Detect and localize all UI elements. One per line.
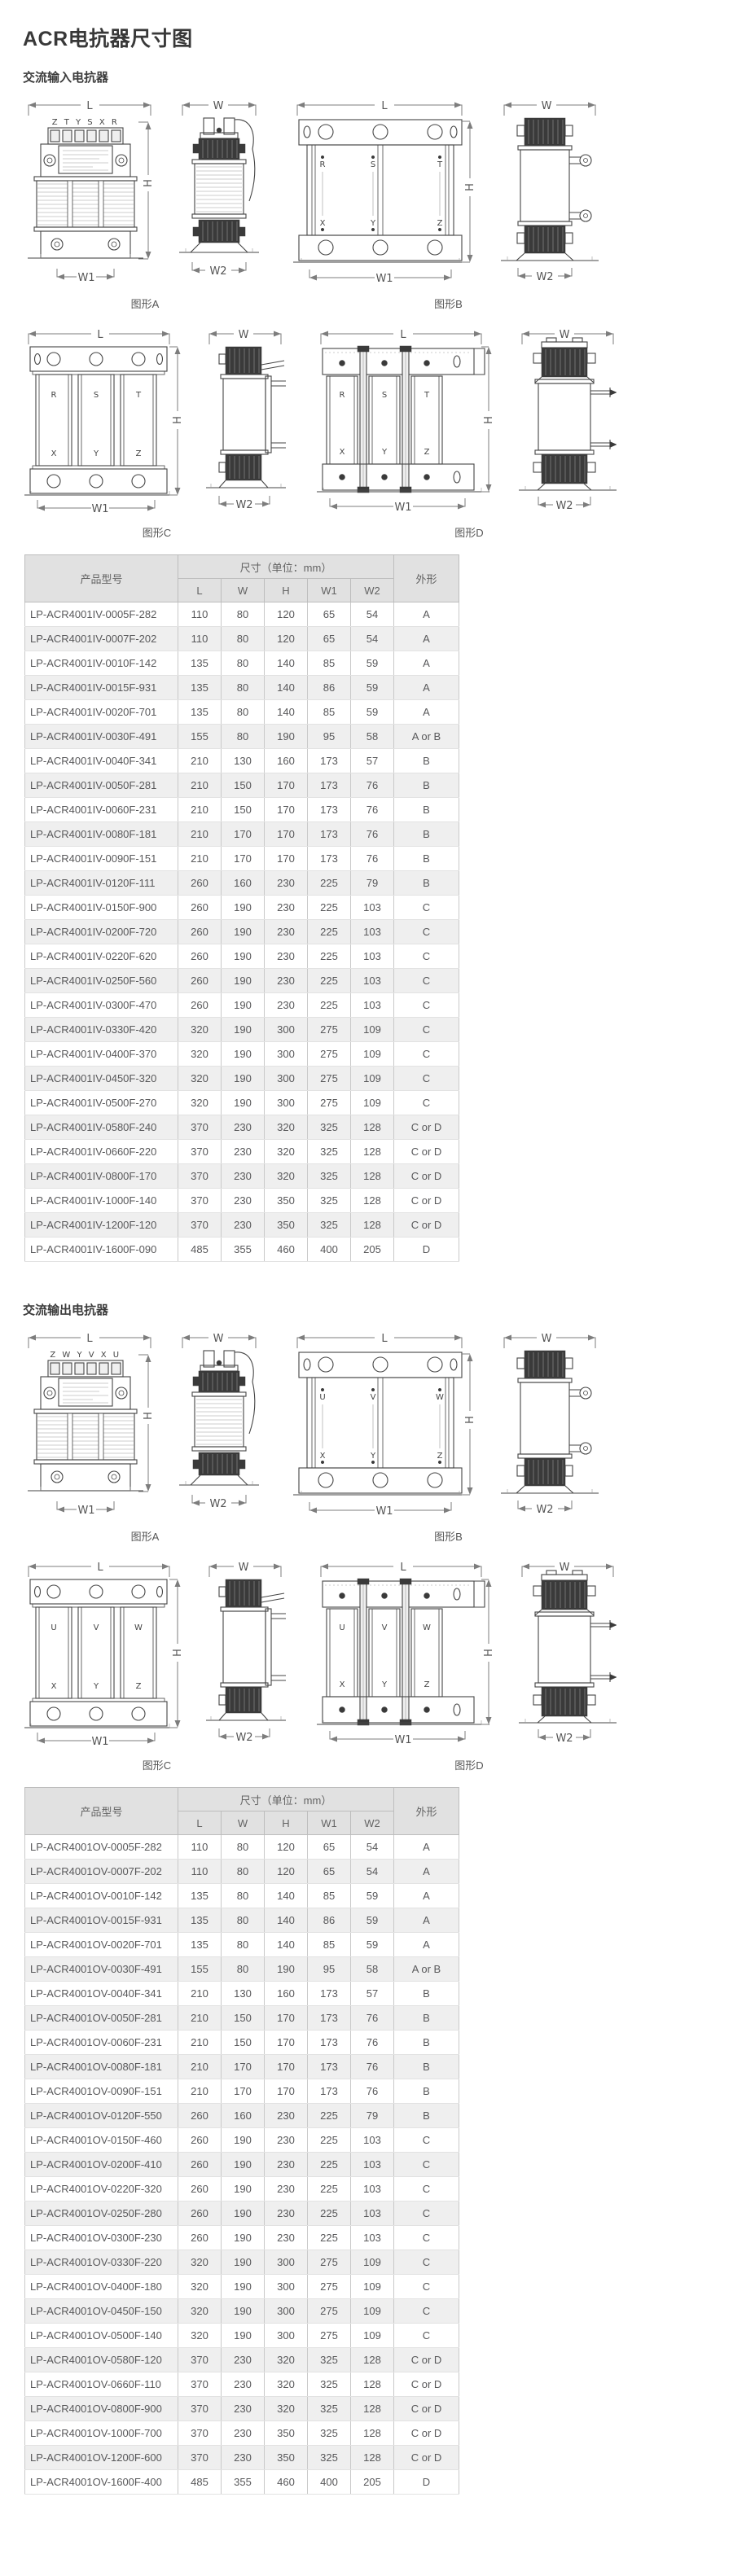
- dim-cell: 320: [265, 1115, 308, 1140]
- dim-cell: 79: [351, 2104, 394, 2128]
- model-cell: LP-ACR4001OV-0250F-280: [25, 2201, 178, 2226]
- shape-cell: C or D: [394, 2397, 459, 2421]
- shape-cell: C or D: [394, 1164, 459, 1189]
- shape-cell: C: [394, 2153, 459, 2177]
- dim-cell: 230: [265, 896, 308, 920]
- dim-cell: 190: [222, 1042, 265, 1067]
- figure-group-c: L R S T X Y Z: [24, 326, 289, 540]
- shape-cell: C: [394, 969, 459, 993]
- model-cell: LP-ACR4001OV-0500F-140: [25, 2324, 178, 2348]
- dim-cell: 76: [351, 847, 394, 871]
- shape-cell: C: [394, 1018, 459, 1042]
- figure-caption-c: 图形C: [24, 524, 289, 540]
- dim-cell: 230: [222, 1164, 265, 1189]
- dim-cell: 109: [351, 1018, 394, 1042]
- dim-cell: 103: [351, 944, 394, 969]
- table-row: LP-ACR4001IV-0500F-270320190300275109C: [25, 1091, 459, 1115]
- dim-cell: 325: [308, 2446, 351, 2470]
- model-cell: LP-ACR4001IV-0660F-220: [25, 1140, 178, 1164]
- dim-cell: 103: [351, 920, 394, 944]
- dim-label-w1: W1: [375, 273, 393, 285]
- dim-cell: 80: [222, 1860, 265, 1884]
- dim-cell: 160: [265, 749, 308, 773]
- dim-cell: 230: [222, 1115, 265, 1140]
- dim-cell: 76: [351, 2055, 394, 2079]
- table-row: LP-ACR4001OV-0660F-110370230320325128C o…: [25, 2372, 459, 2397]
- shape-cell: A: [394, 1884, 459, 1908]
- table-row: LP-ACR4001OV-0010F-142135801408559A: [25, 1884, 459, 1908]
- shape-cell: C: [394, 944, 459, 969]
- terminal-labels: Z W Y V X U: [50, 1351, 121, 1360]
- dim-cell: 103: [351, 2128, 394, 2153]
- dim-cell: 110: [178, 1835, 222, 1860]
- shape-cell: B: [394, 1982, 459, 2006]
- shape-cell: C: [394, 1067, 459, 1091]
- shape-cell: C or D: [394, 1115, 459, 1140]
- table-row: LP-ACR4001OV-1600F-400485355460400205D: [25, 2470, 459, 2495]
- model-cell: LP-ACR4001IV-0015F-931: [25, 676, 178, 700]
- figure-caption-d: 图形D: [317, 524, 621, 540]
- dim-label-h: H: [464, 1416, 476, 1424]
- table-row: LP-ACR4001OV-0800F-900370230320325128C o…: [25, 2397, 459, 2421]
- dim-cell: 130: [222, 1982, 265, 2006]
- dim-cell: 59: [351, 676, 394, 700]
- model-cell: LP-ACR4001OV-0010F-142: [25, 1884, 178, 1908]
- page-title: ACR电抗器尺寸图: [23, 23, 733, 52]
- table-row: LP-ACR4001IV-0330F-420320190300275109C: [25, 1018, 459, 1042]
- model-cell: LP-ACR4001IV-0500F-270: [25, 1091, 178, 1115]
- dim-label-w1: W1: [77, 272, 94, 284]
- figure-row-ab: L Z T Y S X R: [24, 97, 733, 311]
- figure-caption-b: 图形B: [293, 1528, 604, 1544]
- shape-cell: C: [394, 896, 459, 920]
- dim-cell: 320: [265, 1164, 308, 1189]
- figure-b-side-drawing: W W2: [498, 97, 604, 292]
- dim-cell: 275: [308, 1042, 351, 1067]
- shape-cell: C or D: [394, 1140, 459, 1164]
- dim-cell: 230: [222, 2446, 265, 2470]
- dim-cell: 210: [178, 822, 222, 847]
- dim-cell: 135: [178, 700, 222, 725]
- shape-cell: A: [394, 700, 459, 725]
- shape-cell: B: [394, 2079, 459, 2104]
- dim-cell: 300: [265, 2299, 308, 2324]
- dim-label-l: L: [381, 1333, 388, 1345]
- model-cell: LP-ACR4001IV-0400F-370: [25, 1042, 178, 1067]
- dim-cell: 370: [178, 2348, 222, 2372]
- dim-cell: 86: [308, 1908, 351, 1933]
- figure-d-front-drawing: L U V W X Y: [317, 1558, 496, 1754]
- dim-cell: 320: [178, 1067, 222, 1091]
- dim-cell: 85: [308, 1884, 351, 1908]
- dim-cell: 120: [265, 1835, 308, 1860]
- dim-cell: 320: [178, 2275, 222, 2299]
- table-row: LP-ACR4001IV-0660F-220370230320325128C o…: [25, 1140, 459, 1164]
- figure-row-ab: L Z W Y V X U: [24, 1330, 733, 1544]
- terminal-label: V: [371, 1393, 376, 1402]
- terminal-label: R: [340, 391, 345, 400]
- figure-group-b: L R S T X Y Z: [293, 97, 604, 311]
- model-cell: LP-ACR4001IV-0330F-420: [25, 1018, 178, 1042]
- dim-cell: 325: [308, 1140, 351, 1164]
- dim-cell: 190: [222, 2177, 265, 2201]
- dim-label-w1: W1: [77, 1505, 94, 1517]
- dim-cell: 230: [265, 2226, 308, 2250]
- model-cell: LP-ACR4001IV-0120F-111: [25, 871, 178, 896]
- dim-label-w1: W1: [91, 503, 108, 515]
- table-row: LP-ACR4001OV-0120F-55026016023022579B: [25, 2104, 459, 2128]
- figure-c-front-drawing: L U V W X Y Z: [24, 1558, 183, 1754]
- dim-cell: 170: [265, 847, 308, 871]
- dim-cell: 170: [265, 773, 308, 798]
- figure-group-b: L U V W X Y Z: [293, 1330, 604, 1544]
- dim-cell: 128: [351, 1213, 394, 1238]
- dim-cell: 190: [222, 944, 265, 969]
- figures-ac-input: L Z T Y S X R: [0, 97, 733, 540]
- shape-cell: B: [394, 2104, 459, 2128]
- model-cell: LP-ACR4001OV-0090F-151: [25, 2079, 178, 2104]
- model-cell: LP-ACR4001OV-0400F-180: [25, 2275, 178, 2299]
- shape-cell: C: [394, 2177, 459, 2201]
- dim-cell: 325: [308, 1164, 351, 1189]
- model-cell: LP-ACR4001OV-0030F-491: [25, 1957, 178, 1982]
- output-reactor-table: 产品型号 尺寸（单位：mm） 外形 L W H W1 W2 LP-ACR4001…: [24, 1787, 459, 2495]
- model-cell: LP-ACR4001IV-0220F-620: [25, 944, 178, 969]
- dim-label-w2: W2: [555, 500, 573, 512]
- dim-cell: 140: [265, 1884, 308, 1908]
- dim-label-w: W: [542, 100, 552, 112]
- terminal-label: X: [340, 1680, 345, 1689]
- terminal-label: W: [423, 1623, 431, 1632]
- model-cell: LP-ACR4001OV-0300F-230: [25, 2226, 178, 2250]
- dim-cell: 173: [308, 1982, 351, 2006]
- dim-cell: 80: [222, 1933, 265, 1957]
- shape-cell: A: [394, 1908, 459, 1933]
- dim-label-w: W: [213, 100, 224, 112]
- dim-cell: 140: [265, 651, 308, 676]
- terminal-label: Z: [437, 219, 443, 228]
- dim-cell: 79: [351, 871, 394, 896]
- dim-cell: 110: [178, 1860, 222, 1884]
- dim-cell: 170: [265, 822, 308, 847]
- model-cell: LP-ACR4001OV-0200F-410: [25, 2153, 178, 2177]
- dim-cell: 80: [222, 602, 265, 627]
- dim-cell: 140: [265, 1908, 308, 1933]
- table-row: LP-ACR4001OV-1200F-600370230350325128C o…: [25, 2446, 459, 2470]
- dim-cell: 103: [351, 993, 394, 1018]
- dim-label-w2: W2: [235, 1732, 252, 1744]
- dim-cell: 80: [222, 1835, 265, 1860]
- shape-cell: C or D: [394, 1213, 459, 1238]
- dim-cell: 190: [222, 2201, 265, 2226]
- dim-cell: 109: [351, 2299, 394, 2324]
- dim-cell: 109: [351, 1067, 394, 1091]
- model-cell: LP-ACR4001OV-0220F-320: [25, 2177, 178, 2201]
- terminal-label: Y: [381, 448, 388, 457]
- dim-cell: 230: [265, 944, 308, 969]
- dim-cell: 173: [308, 2055, 351, 2079]
- shape-cell: C: [394, 1042, 459, 1067]
- model-cell: LP-ACR4001IV-0007F-202: [25, 627, 178, 651]
- dim-label-w1: W1: [91, 1736, 108, 1748]
- table-row: LP-ACR4001OV-0040F-34121013016017357B: [25, 1982, 459, 2006]
- figure-caption-a: 图形A: [24, 296, 266, 311]
- dim-cell: 103: [351, 2226, 394, 2250]
- dim-cell: 135: [178, 1908, 222, 1933]
- dim-cell: 190: [265, 725, 308, 749]
- header-col-w: W: [222, 579, 265, 602]
- figure-caption-a: 图形A: [24, 1528, 266, 1544]
- figure-group-a: L Z T Y S X R: [24, 97, 266, 311]
- dim-cell: 80: [222, 627, 265, 651]
- dim-cell: 260: [178, 993, 222, 1018]
- shape-cell: B: [394, 798, 459, 822]
- terminal-label: Y: [93, 449, 99, 458]
- table-row: LP-ACR4001OV-0500F-140320190300275109C: [25, 2324, 459, 2348]
- table-row: LP-ACR4001IV-1200F-120370230350325128C o…: [25, 1213, 459, 1238]
- table-row: LP-ACR4001IV-0800F-170370230320325128C o…: [25, 1164, 459, 1189]
- header-col-l: L: [178, 1812, 222, 1835]
- figure-a-front-drawing: L Z W Y V X U: [24, 1330, 155, 1525]
- dim-label-w2: W2: [536, 271, 553, 283]
- dim-cell: 225: [308, 2128, 351, 2153]
- dim-label-w1: W1: [394, 502, 411, 514]
- dim-cell: 103: [351, 2201, 394, 2226]
- dim-cell: 95: [308, 1957, 351, 1982]
- table-body: LP-ACR4001IV-0005F-282110801206554ALP-AC…: [25, 602, 459, 1262]
- dim-label-w: W: [239, 1562, 249, 1574]
- dim-cell: 350: [265, 1213, 308, 1238]
- table-row: LP-ACR4001OV-0050F-28121015017017376B: [25, 2006, 459, 2031]
- terminal-label: X: [51, 449, 57, 458]
- dim-cell: 80: [222, 676, 265, 700]
- dim-label-h: H: [464, 183, 476, 191]
- dim-cell: 350: [265, 2446, 308, 2470]
- terminal-label: W: [134, 1623, 143, 1632]
- dim-cell: 320: [265, 2348, 308, 2372]
- table-row: LP-ACR4001OV-0400F-180320190300275109C: [25, 2275, 459, 2299]
- dim-cell: 370: [178, 2446, 222, 2470]
- dim-cell: 225: [308, 920, 351, 944]
- table-row: LP-ACR4001IV-0060F-23121015017017376B: [25, 798, 459, 822]
- model-cell: LP-ACR4001OV-0660F-110: [25, 2372, 178, 2397]
- table-row: LP-ACR4001OV-0090F-15121017017017376B: [25, 2079, 459, 2104]
- table-row: LP-ACR4001IV-1600F-090485355460400205D: [25, 1238, 459, 1262]
- dim-cell: 230: [222, 2348, 265, 2372]
- dim-cell: 58: [351, 725, 394, 749]
- shape-cell: B: [394, 2055, 459, 2079]
- terminal-label: Y: [370, 1452, 376, 1461]
- terminal-label: Z: [424, 1680, 430, 1689]
- table-row: LP-ACR4001IV-0007F-202110801206554A: [25, 627, 459, 651]
- dim-cell: 173: [308, 773, 351, 798]
- shape-cell: C: [394, 2250, 459, 2275]
- dim-cell: 210: [178, 847, 222, 871]
- dim-cell: 140: [265, 676, 308, 700]
- dim-cell: 325: [308, 2348, 351, 2372]
- dim-cell: 190: [222, 2153, 265, 2177]
- shape-cell: C: [394, 2324, 459, 2348]
- shape-cell: D: [394, 2470, 459, 2495]
- dim-cell: 170: [265, 2006, 308, 2031]
- terminal-label: T: [424, 391, 430, 400]
- dim-cell: 350: [265, 2421, 308, 2446]
- table-row: LP-ACR4001IV-0020F-701135801408559A: [25, 700, 459, 725]
- dim-cell: 370: [178, 2397, 222, 2421]
- figure-a-side-drawing: W: [176, 97, 266, 292]
- terminal-label: S: [382, 391, 387, 400]
- section-heading-input: 交流输入电抗器: [23, 68, 733, 85]
- figure-row-cd: L U V W X Y Z: [24, 1558, 733, 1772]
- dim-cell: 128: [351, 2397, 394, 2421]
- dim-cell: 230: [222, 2421, 265, 2446]
- model-cell: LP-ACR4001IV-0050F-281: [25, 773, 178, 798]
- dim-cell: 128: [351, 2421, 394, 2446]
- dim-cell: 54: [351, 602, 394, 627]
- shape-cell: A or B: [394, 725, 459, 749]
- section-ac-output: 交流输出电抗器 L Z W Y V X U: [0, 1301, 733, 2495]
- table-row: LP-ACR4001OV-0080F-18121017017017376B: [25, 2055, 459, 2079]
- dim-cell: 275: [308, 1067, 351, 1091]
- table-row: LP-ACR4001OV-0020F-701135801408559A: [25, 1933, 459, 1957]
- dim-cell: 173: [308, 2006, 351, 2031]
- dim-cell: 120: [265, 1860, 308, 1884]
- model-cell: LP-ACR4001IV-0005F-282: [25, 602, 178, 627]
- figure-caption-b: 图形B: [293, 296, 604, 311]
- table-row: LP-ACR4001IV-0005F-282110801206554A: [25, 602, 459, 627]
- dim-cell: 370: [178, 1140, 222, 1164]
- dim-cell: 135: [178, 651, 222, 676]
- terminal-label: X: [320, 219, 326, 228]
- table-row: LP-ACR4001IV-0250F-560260190230225103C: [25, 969, 459, 993]
- dim-cell: 109: [351, 2250, 394, 2275]
- dim-cell: 225: [308, 993, 351, 1018]
- dim-cell: 225: [308, 2104, 351, 2128]
- dim-cell: 140: [265, 700, 308, 725]
- shape-cell: D: [394, 1238, 459, 1262]
- dim-cell: 355: [222, 1238, 265, 1262]
- shape-cell: B: [394, 2006, 459, 2031]
- header-shape: 外形: [394, 1788, 459, 1835]
- dim-cell: 95: [308, 725, 351, 749]
- dim-cell: 460: [265, 2470, 308, 2495]
- dim-cell: 325: [308, 2397, 351, 2421]
- model-cell: LP-ACR4001IV-0580F-240: [25, 1115, 178, 1140]
- terminal-label: R: [51, 391, 57, 400]
- dim-cell: 59: [351, 1908, 394, 1933]
- table-row: LP-ACR4001OV-0005F-282110801206554A: [25, 1835, 459, 1860]
- dim-cell: 190: [222, 2226, 265, 2250]
- dim-cell: 190: [222, 1091, 265, 1115]
- model-cell: LP-ACR4001IV-0150F-900: [25, 896, 178, 920]
- dim-cell: 370: [178, 1164, 222, 1189]
- dim-label-l: L: [86, 100, 93, 112]
- dim-cell: 109: [351, 1091, 394, 1115]
- model-cell: LP-ACR4001IV-0020F-701: [25, 700, 178, 725]
- dim-cell: 170: [265, 2079, 308, 2104]
- model-cell: LP-ACR4001IV-0040F-341: [25, 749, 178, 773]
- table-row: LP-ACR4001IV-0015F-931135801408659A: [25, 676, 459, 700]
- shape-cell: C: [394, 2201, 459, 2226]
- dim-cell: 170: [222, 847, 265, 871]
- dim-cell: 103: [351, 2153, 394, 2177]
- dim-cell: 190: [222, 969, 265, 993]
- dim-cell: 230: [265, 920, 308, 944]
- dim-cell: 170: [222, 822, 265, 847]
- dim-cell: 128: [351, 2348, 394, 2372]
- figure-a-side-drawing: W: [176, 1330, 266, 1525]
- model-cell: LP-ACR4001IV-0250F-560: [25, 969, 178, 993]
- dim-cell: 205: [351, 2470, 394, 2495]
- table-row: LP-ACR4001IV-0080F-18121017017017376B: [25, 822, 459, 847]
- dim-cell: 58: [351, 1957, 394, 1982]
- dim-cell: 205: [351, 1238, 394, 1262]
- dim-label-w1: W1: [375, 1505, 393, 1518]
- terminal-label: S: [371, 160, 375, 169]
- dim-cell: 59: [351, 651, 394, 676]
- figure-b-side-drawing: W W2: [498, 1330, 604, 1525]
- dim-cell: 173: [308, 798, 351, 822]
- dim-cell: 170: [265, 798, 308, 822]
- dim-label-w2: W2: [555, 1733, 573, 1745]
- dim-label-w: W: [560, 329, 570, 341]
- model-cell: LP-ACR4001OV-0015F-931: [25, 1908, 178, 1933]
- dim-cell: 76: [351, 822, 394, 847]
- dim-cell: 300: [265, 2324, 308, 2348]
- model-cell: LP-ACR4001OV-0080F-181: [25, 2055, 178, 2079]
- dim-label-w: W: [560, 1562, 570, 1574]
- figure-row-cd: L R S T X Y Z: [24, 326, 733, 540]
- dim-cell: 128: [351, 2372, 394, 2397]
- header-col-h: H: [265, 1812, 308, 1835]
- terminal-label: W: [436, 1393, 444, 1402]
- table-row: LP-ACR4001OV-0200F-410260190230225103C: [25, 2153, 459, 2177]
- dim-cell: 76: [351, 798, 394, 822]
- table-row: LP-ACR4001IV-0090F-15121017017017376B: [25, 847, 459, 871]
- model-cell: LP-ACR4001IV-1600F-090: [25, 1238, 178, 1262]
- model-cell: LP-ACR4001OV-0007F-202: [25, 1860, 178, 1884]
- table-row: LP-ACR4001IV-0040F-34121013016017357B: [25, 749, 459, 773]
- terminal-label: Y: [370, 219, 376, 228]
- dim-label-h: H: [172, 1649, 183, 1657]
- dim-cell: 485: [178, 2470, 222, 2495]
- dim-cell: 300: [265, 1018, 308, 1042]
- dim-cell: 300: [265, 2250, 308, 2275]
- model-cell: LP-ACR4001OV-0060F-231: [25, 2031, 178, 2055]
- dim-cell: 300: [265, 1091, 308, 1115]
- dim-cell: 80: [222, 1957, 265, 1982]
- dim-cell: 460: [265, 1238, 308, 1262]
- terminal-label: Z: [136, 1682, 142, 1691]
- dim-cell: 225: [308, 2177, 351, 2201]
- dim-cell: 160: [222, 871, 265, 896]
- dim-cell: 190: [222, 1067, 265, 1091]
- shape-cell: B: [394, 822, 459, 847]
- model-cell: LP-ACR4001OV-0005F-282: [25, 1835, 178, 1860]
- terminal-label: Y: [93, 1682, 99, 1691]
- dim-label-w: W: [542, 1333, 552, 1345]
- table-row: LP-ACR4001IV-0150F-900260190230225103C: [25, 896, 459, 920]
- dim-cell: 155: [178, 725, 222, 749]
- shape-cell: B: [394, 773, 459, 798]
- shape-cell: B: [394, 749, 459, 773]
- dim-cell: 80: [222, 725, 265, 749]
- dim-cell: 190: [222, 2299, 265, 2324]
- dim-cell: 86: [308, 676, 351, 700]
- dim-cell: 173: [308, 847, 351, 871]
- shape-cell: A or B: [394, 1957, 459, 1982]
- dim-cell: 275: [308, 2250, 351, 2275]
